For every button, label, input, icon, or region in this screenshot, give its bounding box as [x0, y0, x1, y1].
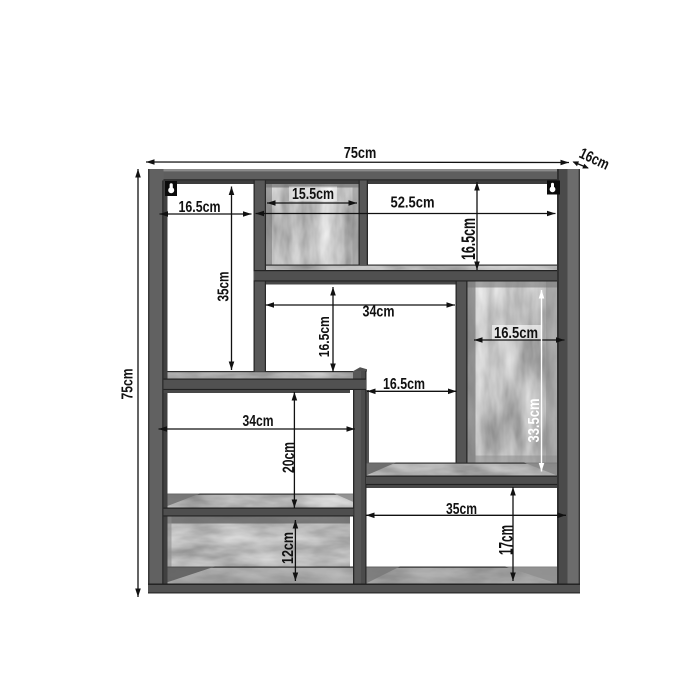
svg-text:35cm: 35cm: [446, 501, 477, 518]
svg-text:34cm: 34cm: [243, 413, 274, 430]
svg-text:20cm: 20cm: [279, 442, 298, 473]
svg-text:16.5cm: 16.5cm: [494, 325, 538, 342]
svg-text:33.5cm: 33.5cm: [526, 399, 543, 443]
svg-text:16.5cm: 16.5cm: [179, 199, 221, 216]
svg-text:16.5cm: 16.5cm: [316, 316, 333, 357]
svg-text:34cm: 34cm: [363, 304, 395, 321]
svg-text:75cm: 75cm: [120, 369, 137, 400]
svg-text:17cm: 17cm: [496, 525, 517, 555]
svg-text:16.5cm: 16.5cm: [459, 218, 480, 260]
svg-text:75cm: 75cm: [344, 145, 377, 162]
svg-text:16.5cm: 16.5cm: [383, 376, 425, 393]
svg-text:15.5cm: 15.5cm: [292, 186, 334, 203]
svg-text:12cm: 12cm: [280, 532, 297, 564]
svg-text:35cm: 35cm: [215, 272, 232, 302]
svg-text:52.5cm: 52.5cm: [391, 195, 435, 212]
